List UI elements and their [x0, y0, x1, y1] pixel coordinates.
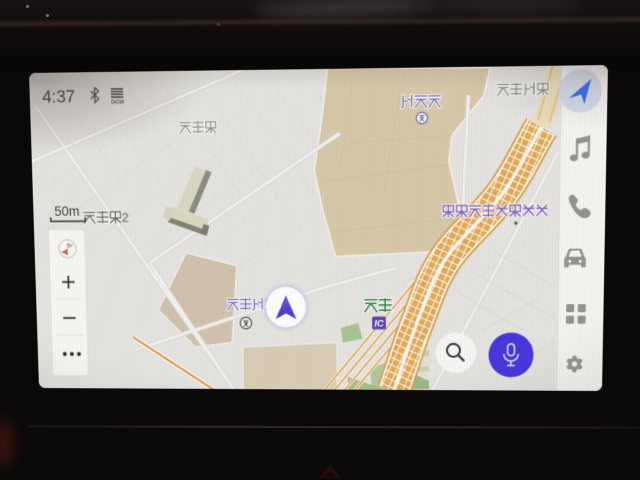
- svg-text:4:37: 4:37: [42, 86, 75, 107]
- svg-text:IC: IC: [374, 317, 384, 328]
- svg-text:50m: 50m: [54, 204, 80, 219]
- svg-text:DCM: DCM: [111, 100, 124, 106]
- svg-text:2: 2: [122, 210, 129, 225]
